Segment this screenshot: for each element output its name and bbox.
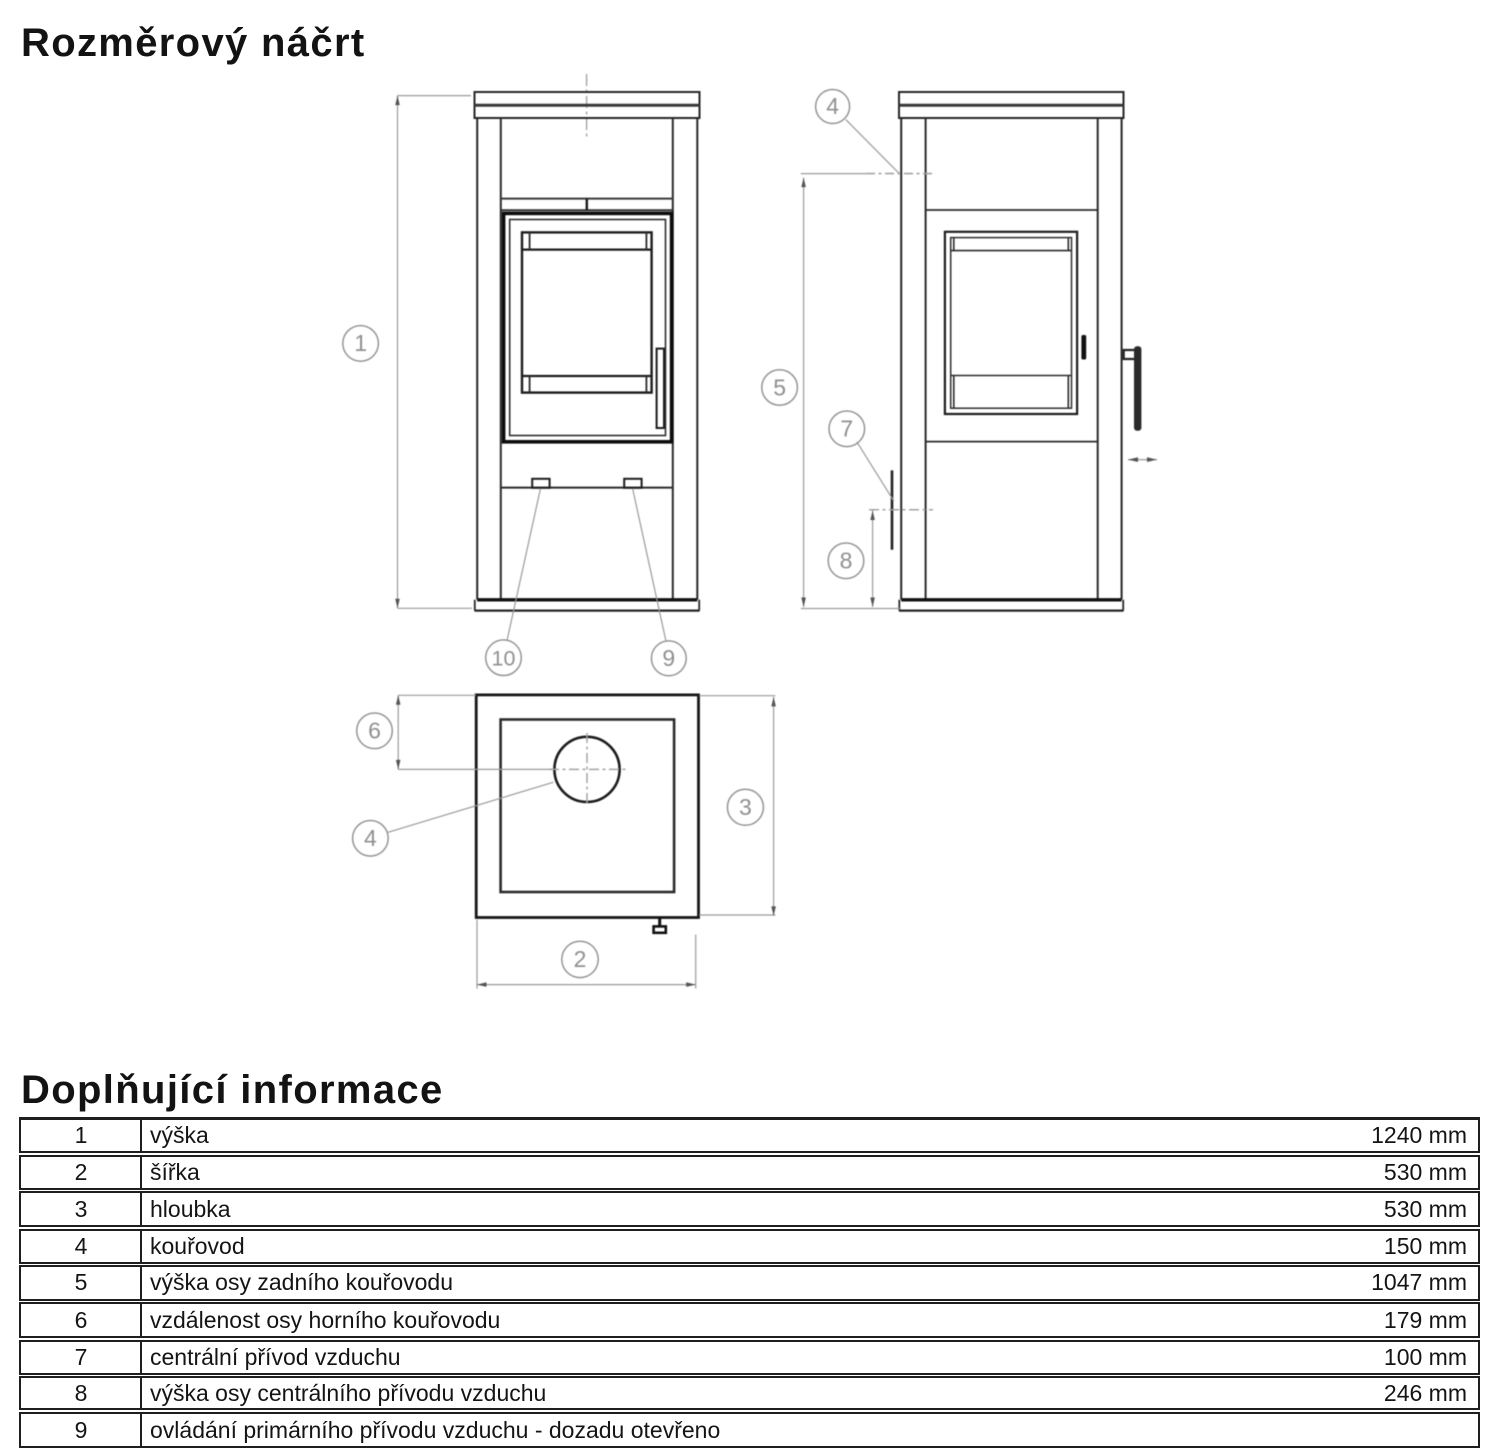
svg-text:3: 3 bbox=[739, 794, 752, 820]
svg-text:4: 4 bbox=[826, 93, 839, 119]
svg-text:8: 8 bbox=[840, 548, 853, 574]
svg-text:7: 7 bbox=[840, 416, 853, 442]
svg-text:10: 10 bbox=[492, 646, 516, 670]
svg-text:2: 2 bbox=[574, 946, 587, 972]
svg-text:6: 6 bbox=[368, 718, 381, 744]
svg-text:1: 1 bbox=[354, 330, 367, 356]
svg-text:4: 4 bbox=[364, 825, 377, 851]
svg-text:9: 9 bbox=[662, 645, 675, 671]
svg-text:5: 5 bbox=[773, 374, 786, 400]
